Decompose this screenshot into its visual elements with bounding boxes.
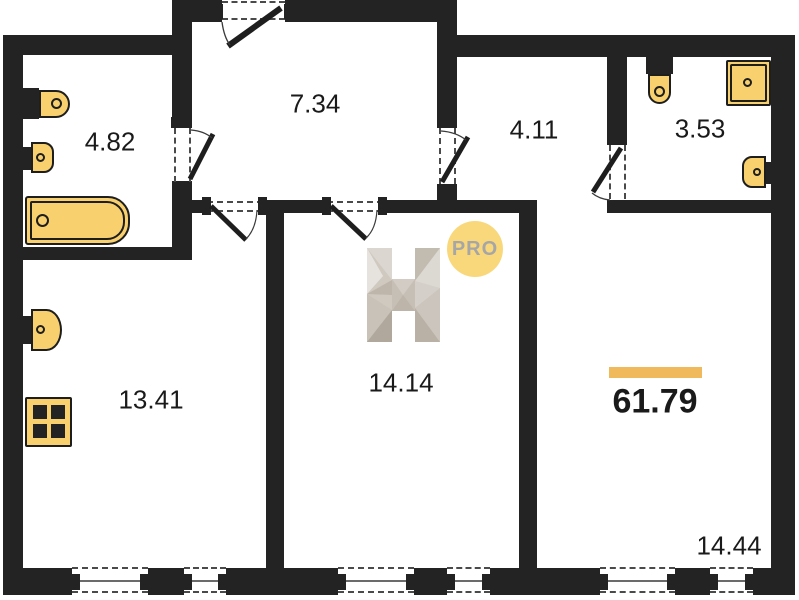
window-frame xyxy=(184,574,192,590)
window-frame xyxy=(72,574,80,590)
wall-bottom-seg4 xyxy=(490,568,600,595)
window-glass xyxy=(338,580,414,582)
window-frame xyxy=(710,574,718,590)
wall-kitchen-room1 xyxy=(266,213,284,570)
door-opening xyxy=(189,128,191,182)
wall-bath2-bottom xyxy=(607,200,795,213)
window-dash xyxy=(710,567,753,569)
sink-drain-icon xyxy=(36,153,45,162)
window-frame xyxy=(406,574,414,590)
room-area-corridor: 4.11 xyxy=(510,115,559,146)
burner-icon xyxy=(33,405,47,419)
wall-top-left xyxy=(3,35,192,55)
door-opening xyxy=(207,201,263,203)
wall-left xyxy=(3,35,23,595)
burner-icon xyxy=(33,424,47,438)
door-opening xyxy=(174,128,176,182)
pro-badge: PRO xyxy=(447,221,503,277)
door-jamb xyxy=(171,117,192,128)
wall-bottom-seg5 xyxy=(675,568,710,595)
door-opening xyxy=(327,210,383,212)
window-frame xyxy=(667,574,675,590)
room-area-hallway: 7.34 xyxy=(290,89,341,120)
wall-bottom-seg2 xyxy=(226,568,338,595)
window-dash xyxy=(184,591,226,593)
window-frame xyxy=(338,574,346,590)
burner-icon xyxy=(51,405,65,419)
wall-top-right xyxy=(457,35,795,57)
room-area-bathroom-2: 3.53 xyxy=(675,114,726,145)
sink-mount-icon xyxy=(23,316,31,344)
toilet-drain-icon xyxy=(654,86,665,97)
window-frame xyxy=(447,574,455,590)
bathtub-drain-icon xyxy=(36,214,49,227)
window-dash xyxy=(600,591,675,593)
door-jamb xyxy=(322,197,331,215)
window-dash xyxy=(447,567,490,569)
wall-hall-corridor-lower xyxy=(437,184,457,213)
sink-drain-icon xyxy=(753,168,761,176)
window-dash xyxy=(338,567,414,569)
wall-corridor-bath2 xyxy=(607,57,627,145)
wall-bottom-seg3 xyxy=(414,568,447,595)
logo-h-icon xyxy=(367,248,440,342)
door-jamb xyxy=(438,116,456,128)
door-opening xyxy=(207,210,263,212)
window-frame xyxy=(140,574,148,590)
door-opening xyxy=(624,145,626,199)
room-area-bathroom-1: 4.82 xyxy=(85,127,136,158)
window-frame xyxy=(600,574,608,590)
wall-bath1-bottom xyxy=(23,247,192,260)
room-area-bedroom: 14.44 xyxy=(696,531,761,562)
door-jamb xyxy=(284,4,292,19)
door-opening xyxy=(222,18,285,20)
window-dash xyxy=(72,591,148,593)
sink-drain-icon xyxy=(36,325,45,334)
wall-band-c xyxy=(383,200,537,213)
window-frame xyxy=(218,574,226,590)
floor-plan: PRO 4.82 7.34 4.11 3.53 13.41 14.14 14.4… xyxy=(0,0,799,600)
toilet-drain-icon xyxy=(51,98,62,109)
door-swings xyxy=(0,0,799,600)
door-opening xyxy=(327,201,383,203)
wall-bottom-seg1 xyxy=(148,568,184,595)
window-frame xyxy=(482,574,490,590)
wall-right xyxy=(771,35,795,595)
stove-icon xyxy=(25,397,72,447)
burner-icon xyxy=(51,424,65,438)
window-dash xyxy=(184,567,226,569)
door-opening xyxy=(222,1,285,3)
window-glass xyxy=(600,580,675,582)
window-dash xyxy=(338,591,414,593)
window-frame xyxy=(745,574,753,590)
room-area-room1: 14.14 xyxy=(368,368,433,399)
window-dash xyxy=(72,567,148,569)
total-area-label: 61.79 xyxy=(612,383,697,422)
sink-mount-icon xyxy=(23,147,31,170)
total-area-accent-bar xyxy=(609,367,702,378)
wall-band-b xyxy=(263,200,327,213)
wall-room1-room2 xyxy=(519,213,537,570)
toilet-tank-icon xyxy=(23,88,39,119)
window-dash xyxy=(600,567,675,569)
door-opening xyxy=(609,145,611,199)
wall-top-hall-b xyxy=(285,0,437,22)
door-opening xyxy=(439,128,441,184)
door-jamb xyxy=(215,4,223,19)
wall-hall-corridor xyxy=(437,0,457,128)
door-jamb xyxy=(608,133,626,145)
door-opening xyxy=(454,128,456,184)
room-area-kitchen: 13.41 xyxy=(118,385,183,416)
pro-badge-label: PRO xyxy=(452,238,498,261)
door-jamb xyxy=(202,197,211,215)
window-dash xyxy=(710,591,753,593)
wall-bottom-corner-right xyxy=(753,568,795,595)
window-glass xyxy=(72,580,148,582)
window-dash xyxy=(447,591,490,593)
shower-drain-icon xyxy=(743,78,752,87)
door-jamb xyxy=(258,197,267,215)
wall-bottom-corner-left xyxy=(3,568,72,595)
toilet-tank-icon xyxy=(646,57,673,74)
door-jamb xyxy=(378,197,387,215)
